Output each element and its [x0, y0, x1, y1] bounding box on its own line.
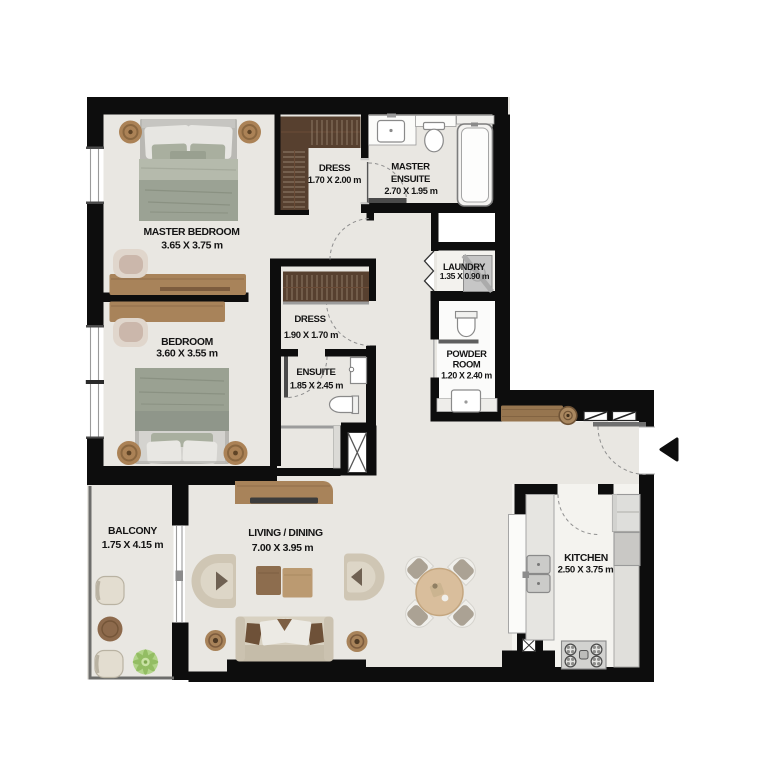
svg-text:1.90 X 1.70 m: 1.90 X 1.70 m — [284, 329, 338, 340]
svg-text:ENSUITE: ENSUITE — [296, 367, 336, 378]
svg-text:1.20 X 2.40 m: 1.20 X 2.40 m — [441, 371, 492, 381]
svg-text:7.00 X 3.95 m: 7.00 X 3.95 m — [252, 542, 313, 554]
svg-text:ROOM: ROOM — [453, 359, 481, 370]
svg-text:BALCONY: BALCONY — [108, 526, 157, 537]
svg-text:DRESS: DRESS — [319, 163, 351, 174]
svg-text:KITCHEN: KITCHEN — [564, 553, 608, 564]
svg-text:MASTER BEDROOM: MASTER BEDROOM — [143, 227, 239, 238]
svg-text:2.50 X 3.75 m: 2.50 X 3.75 m — [558, 565, 614, 576]
svg-text:3.65 X 3.75 m: 3.65 X 3.75 m — [161, 240, 222, 252]
svg-text:1.35 X 0.90 m: 1.35 X 0.90 m — [440, 271, 490, 281]
svg-text:MASTER: MASTER — [391, 162, 430, 173]
svg-text:1.70 X 2.00 m: 1.70 X 2.00 m — [308, 175, 361, 185]
svg-text:ENSUITE: ENSUITE — [391, 174, 431, 185]
svg-text:POWDER: POWDER — [446, 348, 487, 359]
svg-text:LIVING / DINING: LIVING / DINING — [248, 528, 323, 539]
svg-text:BEDROOM: BEDROOM — [161, 337, 213, 348]
svg-text:1.85 X 2.45 m: 1.85 X 2.45 m — [290, 381, 343, 391]
svg-text:1.75 X 4.15 m: 1.75 X 4.15 m — [102, 539, 163, 551]
svg-text:DRESS: DRESS — [294, 314, 326, 325]
svg-text:3.60 X 3.55 m: 3.60 X 3.55 m — [156, 348, 217, 360]
svg-text:2.70 X 1.95 m: 2.70 X 1.95 m — [384, 186, 437, 196]
